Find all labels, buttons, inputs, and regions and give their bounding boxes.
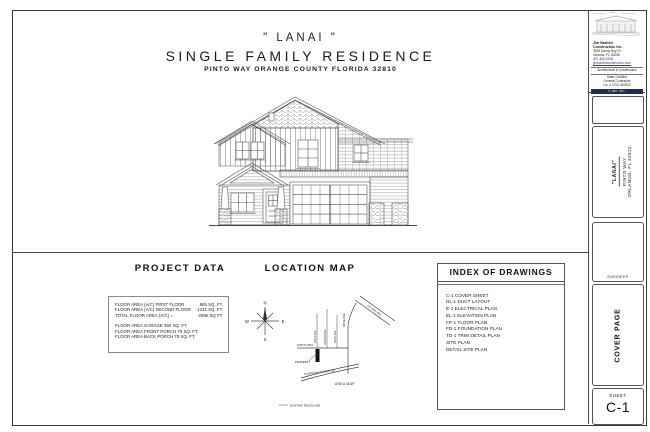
- fence-line-label: EXISTING FENCE LINE: [290, 404, 320, 408]
- location-map-drawing: N S E W PINTO WAY PROPERTY CLARCONA OCOE…: [243, 293, 435, 415]
- floor-area-row: TOTAL FLOOR AREA (A/C) = 2096 SQ FT.: [115, 313, 223, 318]
- index-of-drawings-box: INDEX OF DRAWINGS C-1 COVER SHEET DL-1 D…: [437, 263, 565, 410]
- project-title: " LANAI ": [13, 32, 588, 44]
- project-data-heading: PROJECT DATA: [100, 263, 260, 274]
- rose-ave-label: ROSE AVE: [342, 313, 346, 327]
- compass-w-label: W: [245, 319, 249, 324]
- engineer-label: ENGINEER: [593, 275, 643, 279]
- sidebar-project-name: "LANAI": [612, 157, 620, 187]
- compass-e-label: E: [282, 319, 285, 324]
- project-address: PINTO WAY ORANGE COUNTY FLORIDA 32810: [13, 66, 588, 73]
- street-label: JORDAN AVE: [324, 329, 327, 345]
- company-title-block: Jim Bartlett Construction Inc. 3939 Dann…: [589, 10, 645, 93]
- drawing-list-item: DL-1 DUCT LAYOUT: [446, 299, 564, 306]
- project-subtitle: SINGLE FAMILY RESIDENCE: [13, 48, 588, 64]
- cover-page-box: COVER PAGE: [592, 284, 644, 386]
- section-divider-line: [13, 252, 588, 253]
- drawing-list-item: EL-1 ELEVATION PLAN: [446, 313, 564, 320]
- pinto-way-label: PINTO WAY: [297, 343, 313, 347]
- index-of-drawings-list: C-1 COVER SHEET DL-1 DUCT LAYOUT E-1 ELE…: [438, 285, 564, 354]
- index-of-drawings-heading: INDEX OF DRAWINGS: [438, 264, 564, 282]
- project-data-box: FLOOR AREA (A/C) FIRST FLOOR 865 SQ. FT.…: [108, 296, 229, 353]
- drawing-list-item: DETAIL SITE PLAN: [446, 347, 564, 354]
- area-map-caption: AREA MAP: [335, 382, 355, 386]
- house-elevation-drawing: [195, 93, 425, 243]
- compass-s-label: S: [264, 337, 267, 342]
- drawing-list-item: SITE PLAN: [446, 340, 564, 347]
- company-tagline: Architectural & Construction: [591, 69, 643, 73]
- sheet-label: SHEET: [593, 393, 643, 398]
- cover-page-label: COVER PAGE: [615, 308, 622, 362]
- sheet-number-box: SHEET C-1: [592, 388, 644, 425]
- drawing-list-item: FD-1 FOUNDATION PLAN: [446, 326, 564, 333]
- engineer-box: ENGINEER: [592, 222, 644, 282]
- clarcona-road-label: CLARCONA OCOEE RD: [304, 368, 335, 376]
- sheet-number: C-1: [593, 399, 643, 415]
- property-label: PROPERTY: [295, 360, 310, 364]
- location-map-heading: LOCATION MAP: [250, 263, 370, 274]
- drawing-list-item: TD-1 TRIM DETAIL PLAN: [446, 333, 564, 340]
- floor-area-line: FLOOR AREA BACK PORCH 78 SQ. FT.: [115, 334, 228, 339]
- compass-n-label: N: [263, 301, 266, 306]
- drawing-list-item: FP-1 FLOOR PLAN: [446, 320, 564, 327]
- company-copyright-bar: © JBC INC.: [591, 89, 643, 94]
- street-label: GOLD AVE: [314, 330, 317, 343]
- company-website: jimbartlettconstruction.com: [593, 62, 631, 67]
- sidebar-project-city: ORLANDO, FL 32810: [627, 146, 633, 197]
- drawing-list-item: E-1 ELECTRICAL PLAN: [446, 306, 564, 313]
- revision-box: [592, 96, 644, 124]
- drawing-list-item: C-1 COVER SHEET: [446, 293, 564, 300]
- street-label: ROCK AVE: [334, 330, 337, 343]
- project-info-box: "LANAI" PINTO WAY ORLANDO, FL 32810: [592, 126, 644, 218]
- company-license: Lic. # CGC 040503: [591, 84, 643, 88]
- company-logo-sketch: [591, 11, 641, 37]
